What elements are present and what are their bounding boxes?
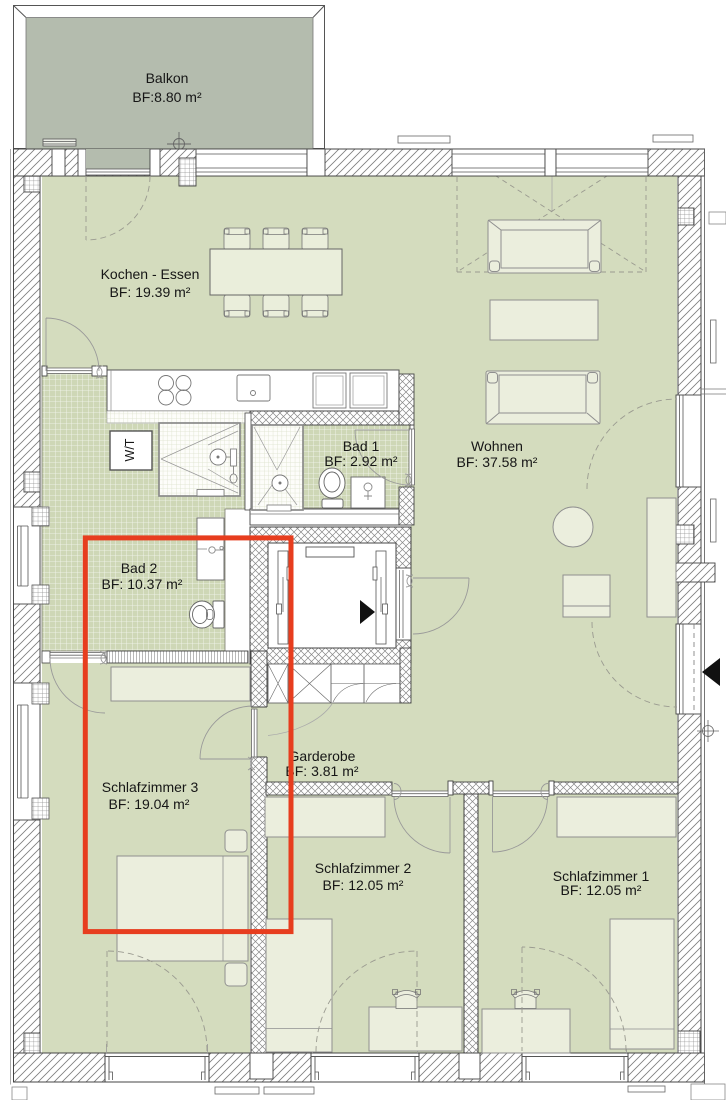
svg-text:Bad 1: Bad 1 (343, 438, 380, 454)
svg-text:BF: 19.39 m²: BF: 19.39 m² (110, 284, 191, 300)
svg-text:Schlafzimmer 3: Schlafzimmer 3 (102, 779, 199, 795)
svg-text:Schlafzimmer 2: Schlafzimmer 2 (315, 860, 412, 876)
svg-text:BF: 37.58 m²: BF: 37.58 m² (457, 454, 538, 470)
svg-text:Garderobe: Garderobe (289, 748, 356, 764)
svg-text:BF: 2.92 m²: BF: 2.92 m² (324, 453, 397, 469)
svg-text:Wohnen: Wohnen (471, 438, 523, 454)
svg-text:W/T: W/T (123, 438, 137, 461)
svg-text:Bad 2: Bad 2 (121, 560, 158, 576)
svg-text:Kochen - Essen: Kochen - Essen (101, 266, 200, 282)
svg-text:BF: 3.81 m²: BF: 3.81 m² (285, 763, 358, 779)
svg-text:BF:8.80 m²: BF:8.80 m² (132, 89, 202, 105)
svg-text:Balkon: Balkon (146, 70, 189, 86)
svg-text:BF: 19.04 m²: BF: 19.04 m² (109, 796, 190, 812)
svg-text:BF: 12.05 m²: BF: 12.05 m² (561, 882, 642, 898)
svg-text:BF: 10.37 m²: BF: 10.37 m² (102, 576, 183, 592)
svg-text:BF: 12.05 m²: BF: 12.05 m² (323, 877, 404, 893)
